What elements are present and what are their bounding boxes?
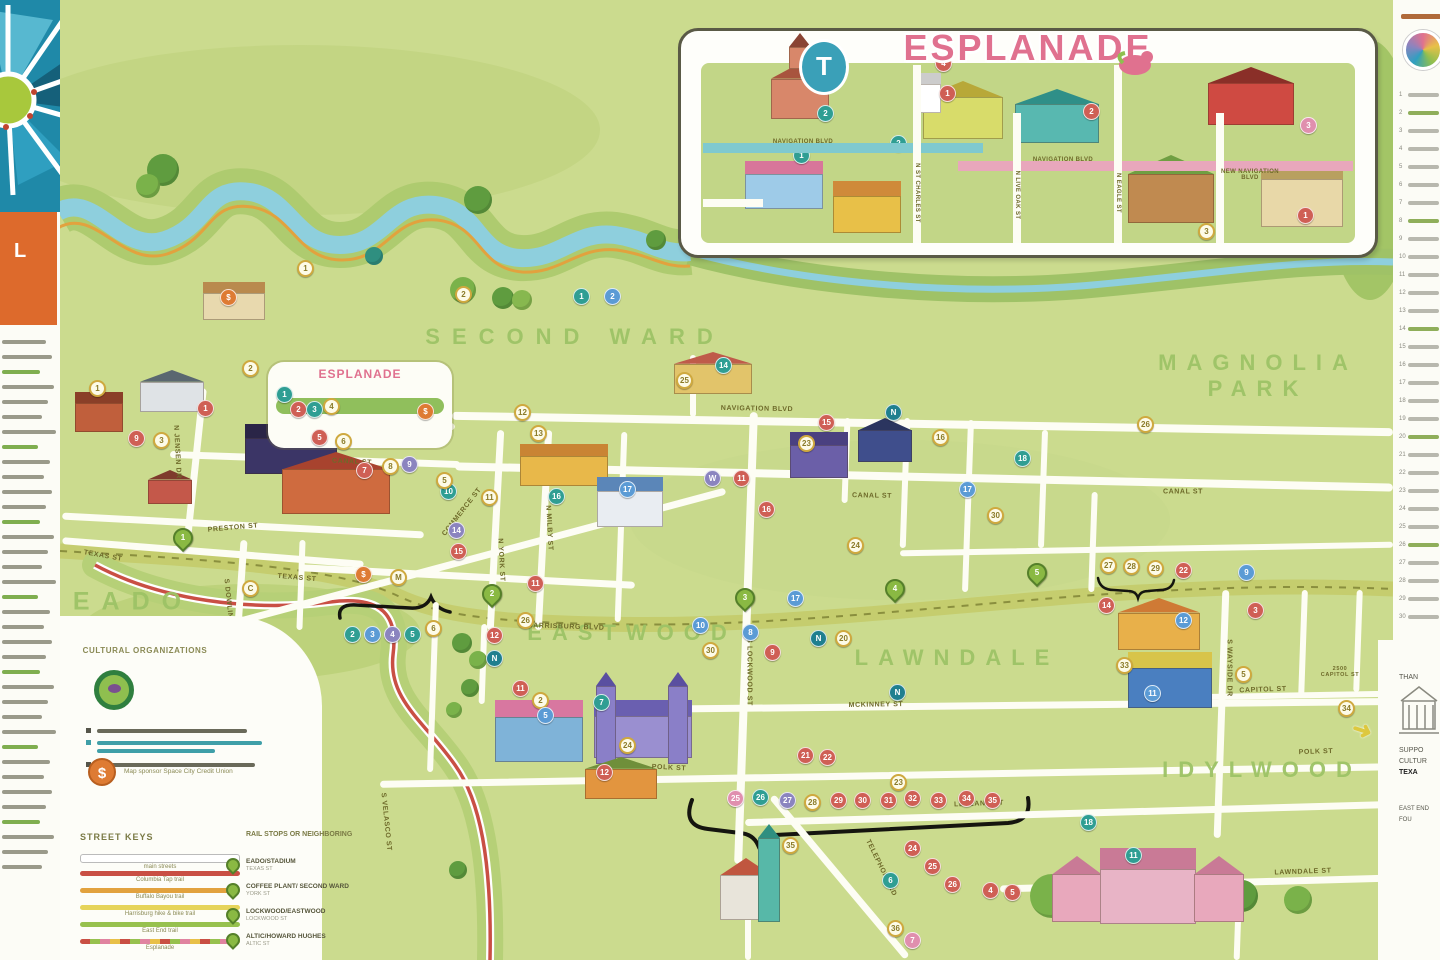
map-marker: 33 [1116,657,1133,674]
entry-text-bar [1408,219,1439,223]
entry-number: 15 [1399,344,1408,350]
entry-number: 2 [1399,110,1408,116]
street-label: POLK ST [1299,748,1334,756]
rail-stop-name: LOCKWOOD/EASTWOOD [246,908,376,916]
map-marker: $ [355,566,372,583]
building-body [140,382,204,412]
map-marker: 29 [830,792,847,809]
street-segment [1088,492,1097,592]
inset-street-label: N EAGLE ST [1115,173,1121,213]
building-body [758,838,780,922]
street-key-item: Harrisburg hike & bike trail [80,905,240,917]
map-marker: 11 [481,489,498,506]
building-roof [140,370,204,382]
street-label: S LOCKWOOD ST [746,638,753,706]
directory-entry: 19 [1399,416,1439,422]
directory-entry: 30 [1399,614,1439,620]
inset-marker: 3 [1198,223,1215,240]
directory-entry: 12 [1399,290,1439,296]
neighborhood-label: IDYLWOOD [1162,757,1362,783]
street-segment [1038,430,1048,548]
tree-icon [512,290,532,310]
map-marker: 34 [958,790,975,807]
directory-entry: 28 [1399,578,1439,584]
building-illustration [520,444,608,486]
entry-text-bar [1408,201,1439,205]
directory-entry: 2 [1399,110,1439,116]
map-marker: 2 [290,401,307,418]
directory-entry: 14 [1399,326,1439,332]
directory-entry: 11 [1399,272,1439,278]
directory-entry [2,595,38,599]
map-marker: 9 [764,644,781,661]
map-marker: 11 [512,680,529,697]
building-illustration [758,824,780,922]
map-marker: 35 [782,837,799,854]
building-sketch-icon [1399,683,1439,741]
entry-number: 25 [1399,524,1408,530]
street-key-label: Columbia Tap trail [80,877,240,883]
building-roof [674,352,752,364]
street-key-label: East End trail [80,928,240,934]
entry-text-bar [1408,489,1439,493]
entry-number: 23 [1399,488,1408,494]
entry-number: 8 [1399,218,1408,224]
entry-number: 27 [1399,560,1408,566]
tree-icon [1284,886,1312,914]
street-label: S VELASCO ST [379,793,392,852]
neighborhood-label: SECOND WARD [425,324,724,350]
directory-entry: 20 [1399,434,1439,440]
map-marker: 16 [758,501,775,518]
map-marker: 12 [486,627,503,644]
street-label: TEXAS ST [277,573,316,583]
street-segment [962,420,974,592]
map-marker: 14 [1098,597,1115,614]
right-sidebar-footer: THAN SUPPO CULTUR TEXA EAST END FOU [1399,672,1440,826]
street-key-item: Columbia Tap trail [80,871,240,883]
directory-entry: 4 [1399,146,1439,152]
directory-entry: 17 [1399,380,1439,386]
building-illustration [1052,856,1102,922]
entry-text-bar [1408,165,1439,169]
street-key-swatch [80,922,240,927]
map-marker: 11 [1144,685,1161,702]
map-marker: 26 [1137,416,1154,433]
tree-icon [365,247,383,265]
map-marker: 1 [197,400,214,417]
map-marker: 5 [537,707,554,724]
street-key-label: Harrisburg hike & bike trail [80,911,240,917]
entry-text-bar [1408,525,1439,529]
map-marker: 2 [455,286,472,303]
tree-icon [492,287,514,309]
entry-text-bar [1408,453,1439,457]
dove-icon [1113,43,1157,83]
building-illustration [148,470,192,504]
map-marker: 7 [593,694,610,711]
map-marker: 7 [904,932,921,949]
entry-text-bar [1408,327,1439,331]
directory-entry [2,475,44,479]
directory-entry [2,505,46,509]
building-roof [1118,598,1200,613]
directory-entry [2,400,48,404]
entry-text-bar [1408,435,1439,439]
entry-text-bar [1408,183,1439,187]
directory-entry [2,655,46,659]
map-marker: 22 [1175,562,1192,579]
entry-text-bar [1408,129,1439,133]
cultural-organizations-heading: CULTURAL ORGANIZATIONS [80,646,210,656]
map-marker: 2 [242,360,259,377]
directory-entry [2,805,46,809]
directory-entry [2,610,50,614]
map-marker: 16 [548,488,565,505]
directory-entry [2,625,44,629]
street-label: N JENSEN DR [172,425,182,479]
map-marker: 2 [344,626,361,643]
directory-entry: 10 [1399,254,1439,260]
map-marker: 29 [1147,560,1164,577]
entry-number: 12 [1399,290,1408,296]
cultural-district-logo-block: L [0,212,57,325]
rail-stop-pin-icon: 2 [478,580,506,608]
map-marker: 4 [323,398,340,415]
map-marker: 30 [987,507,1004,524]
directory-entry: 25 [1399,524,1439,530]
map-marker: 3 [364,626,381,643]
map-marker: $ [417,403,434,420]
building-illustration [585,757,657,799]
directory-entry [2,820,40,824]
east-end-cultural-district-map: NAVIGATION BLVDCANAL STCANAL STCANAL STC… [0,0,1440,960]
street-label: NAVIGATION BLVD [721,405,794,413]
inset-marker: 2 [817,105,834,122]
tree-icon [136,174,160,198]
map-marker: 22 [819,749,836,766]
building-roof [148,470,192,480]
street-key-item: East End trail [80,922,240,934]
map-marker: 18 [1080,814,1097,831]
entry-number: 1 [1399,92,1408,98]
map-canvas: NAVIGATION BLVDCANAL STCANAL STCANAL STC… [0,0,1440,960]
street-key-item: Esplanade [80,939,240,951]
tree-icon [452,633,472,653]
street-segment [1214,590,1230,838]
street-segment [1298,590,1308,698]
street-key-item: main streets [80,854,240,870]
rail-stop-name: COFFEE PLANT/ SECOND WARD [246,883,376,891]
tree-icon [461,679,479,697]
directory-entry [2,580,56,584]
building-body [75,403,123,432]
directory-entry: 16 [1399,362,1439,368]
entry-number: 14 [1399,326,1408,332]
entry-number: 28 [1399,578,1408,584]
street-label: CANAL ST [852,492,892,500]
map-marker: 9 [401,456,418,473]
entry-number: 16 [1399,362,1408,368]
building-roof [1052,856,1102,874]
entry-text-bar [1408,615,1439,619]
directory-entry [2,385,54,389]
inset-street-label: N ST CHARLES ST [914,163,920,223]
entry-text-bar [1408,291,1439,295]
entry-number: 21 [1399,452,1408,458]
street-key-swatch [80,871,240,876]
directory-entry [2,520,40,524]
building-body [495,717,583,762]
building-roof [758,824,780,838]
map-marker: 25 [924,858,941,875]
building-illustration [833,181,901,233]
street-label: N YORK ST [496,538,505,582]
entry-text-bar [1408,399,1439,403]
building-roof [1100,848,1196,869]
building-body [148,480,192,504]
neighborhood-label: MAGNOLIA PARK [1158,350,1358,402]
rail-stop-item: EADO/STADIUMTEXAS ST [246,858,376,872]
legend-panel: CULTURAL ORGANIZATIONS $ Map sponsor Spa… [60,616,322,960]
entry-number: 3 [1399,128,1408,134]
directory-entry: 6 [1399,182,1439,188]
map-marker: 8 [742,624,759,641]
tree-icon [446,702,462,718]
map-marker: 14 [715,357,732,374]
tree-icon [646,230,666,250]
building-body [858,430,912,462]
building-roof [858,418,912,430]
directory-entry: 18 [1399,398,1439,404]
building-roof [585,757,657,769]
esplanade-rect-title: ESPLANADE [268,367,452,381]
map-marker: 1 [573,288,590,305]
entry-text-bar [1408,111,1439,115]
map-marker: M [390,569,407,586]
map-marker: 30 [702,642,719,659]
directory-entry [2,565,42,569]
directory-entry: 26 [1399,542,1439,548]
building-roof [1194,856,1244,874]
left-directory-sidebar: L [0,0,60,960]
entry-number: 30 [1399,614,1408,620]
building-body [833,196,901,233]
map-marker: 5 [1235,666,1252,683]
map-marker: 24 [847,537,864,554]
entry-text-bar [1408,93,1439,97]
inset-marker: 1 [939,85,956,102]
map-marker: 2 [604,288,621,305]
map-marker: 30 [854,792,871,809]
inset-street-label: NAVIGATION BLVD [773,139,833,145]
directory-entry [2,850,48,854]
directory-entry: 23 [1399,488,1439,494]
building-body [1100,869,1196,924]
directory-entry [2,415,42,419]
rail-stop-item: ALTIC/HOWARD HUGHESALTIC ST [246,933,376,947]
map-marker: 1 [297,260,314,277]
directory-entry: 13 [1399,308,1439,314]
entry-number: 11 [1399,272,1408,278]
building-illustration [1100,848,1196,924]
tree-icon [469,651,487,669]
building-body [790,445,848,478]
right-sidebar-heading [1401,14,1440,19]
directory-entry: 27 [1399,560,1439,566]
building-illustration [596,672,616,764]
entry-text-bar [1408,417,1439,421]
building-illustration [140,370,204,412]
inset-marker: 1 [1297,207,1314,224]
entry-text-bar [1408,579,1439,583]
directory-entry: 9 [1399,236,1439,242]
map-marker: 6 [335,433,352,450]
directory-entry [2,775,44,779]
map-marker: 7 [356,462,373,479]
directory-entry: 7 [1399,200,1439,206]
map-marker: 13 [530,425,547,442]
sponsor-dollar-icon: $ [88,758,116,786]
street-segment [900,542,1393,557]
entry-number: 5 [1399,164,1408,170]
rail-stop-name: ALTIC/HOWARD HUGHES [246,933,376,941]
entry-number: 6 [1399,182,1408,188]
entry-text-bar [1408,237,1439,241]
map-marker: 17 [619,481,636,498]
building-illustration [668,672,688,764]
map-marker: 6 [882,872,899,889]
map-marker: 3 [153,432,170,449]
map-marker: 1 [89,380,106,397]
directory-entry [2,340,46,344]
building-roof [1128,652,1212,668]
building-body [1194,874,1244,922]
map-marker: 9 [128,430,145,447]
rail-stop-pin-icon: 3 [731,584,759,612]
map-marker: $ [220,289,237,306]
building-roof [520,444,608,456]
street-key-swatch [80,854,240,863]
inset-street [703,143,983,153]
street-label: S WAYSIDE DR [1226,639,1233,697]
map-marker: 24 [904,840,921,857]
building-body [1128,668,1212,708]
map-marker: 5 [1004,884,1021,901]
entry-number: 19 [1399,416,1408,422]
directory-entry [2,430,56,434]
building-body [1128,174,1214,223]
map-marker: 5 [404,626,421,643]
map-marker: 26 [517,612,534,629]
map-marker: 27 [779,792,796,809]
map-marker: 27 [1100,557,1117,574]
directory-entry: 1 [1399,92,1439,98]
cultural-organizations-emblem-icon [94,670,134,710]
tree-icon [464,186,492,214]
rail-stop-pin-icon: 5 [1023,559,1051,587]
entry-text-bar [1408,345,1439,349]
entry-number: 29 [1399,596,1408,602]
neighborhood-label: LAWNDALE [855,645,1060,671]
building-illustration [1194,856,1244,922]
entry-number: 9 [1399,236,1408,242]
entry-number: 24 [1399,506,1408,512]
capitol-st-arrow-icon: ➜ [1348,714,1376,748]
map-marker: 36 [887,920,904,937]
street-label: TEXAS ST [83,549,123,563]
building-body [668,686,688,764]
map-marker: 5 [311,429,328,446]
building-body [1052,874,1102,922]
building-roof [596,672,616,686]
map-marker: 12 [1175,612,1192,629]
map-marker: 1 [276,386,293,403]
street-key-swatch [80,905,240,910]
directory-entry: 29 [1399,596,1439,602]
directory-entry: 21 [1399,452,1439,458]
inset-marker: 2 [1083,103,1100,120]
inset-title: ESPLANADE [681,27,1375,69]
map-marker: 11 [527,575,544,592]
street-key-label: main streets [80,864,240,870]
entry-text-bar [1408,543,1439,547]
entry-number: 18 [1399,398,1408,404]
rail-stop-item: COFFEE PLANT/ SECOND WARDYORK ST [246,883,376,897]
directory-entry [2,550,48,554]
directory-entry [2,745,38,749]
map-marker: 10 [692,617,709,634]
entry-text-bar [1408,597,1439,601]
map-marker: 12 [514,404,531,421]
inset-street-label: NEW NAVIGATION BLVD [1221,169,1279,181]
map-marker: N [810,630,827,647]
directory-entry [2,490,52,494]
entry-text-bar [1408,507,1439,511]
street-key-label: Esplanade [80,945,240,951]
map-marker: 24 [619,737,636,754]
building-roof [668,672,688,686]
directory-entry [2,865,42,869]
street-label: MCKINNEY ST [849,701,904,709]
building-illustration [75,392,123,432]
map-marker: 11 [1125,847,1142,864]
map-marker: C [242,580,259,597]
directory-entry: 15 [1399,344,1439,350]
rail-stop-substreet: ALTIC ST [246,941,376,947]
esplanade-inset-panel: ESPLANADE T NAVIGATION BLVDNAVIGATION BL… [678,28,1378,258]
street-key-swatch [80,939,240,944]
directory-entry [2,535,54,539]
map-marker: 9 [1238,564,1255,581]
map-marker: 21 [797,747,814,764]
street-segment [452,412,1393,436]
entry-number: 10 [1399,254,1408,260]
rail-stop-name: EADO/STADIUM [246,858,376,866]
street-segment [300,564,635,589]
map-marker: 14 [448,522,465,539]
map-marker: 11 [733,470,750,487]
right-sidebar-logo-icon [1403,30,1440,70]
inset-street [1114,65,1122,243]
directory-entry [2,760,50,764]
directory-entry [2,640,52,644]
east-end-wheel-logo-icon [0,0,60,212]
directory-entry: 8 [1399,218,1439,224]
directory-entry [2,715,42,719]
entry-text-bar [1408,255,1439,259]
map-marker: 17 [787,590,804,607]
